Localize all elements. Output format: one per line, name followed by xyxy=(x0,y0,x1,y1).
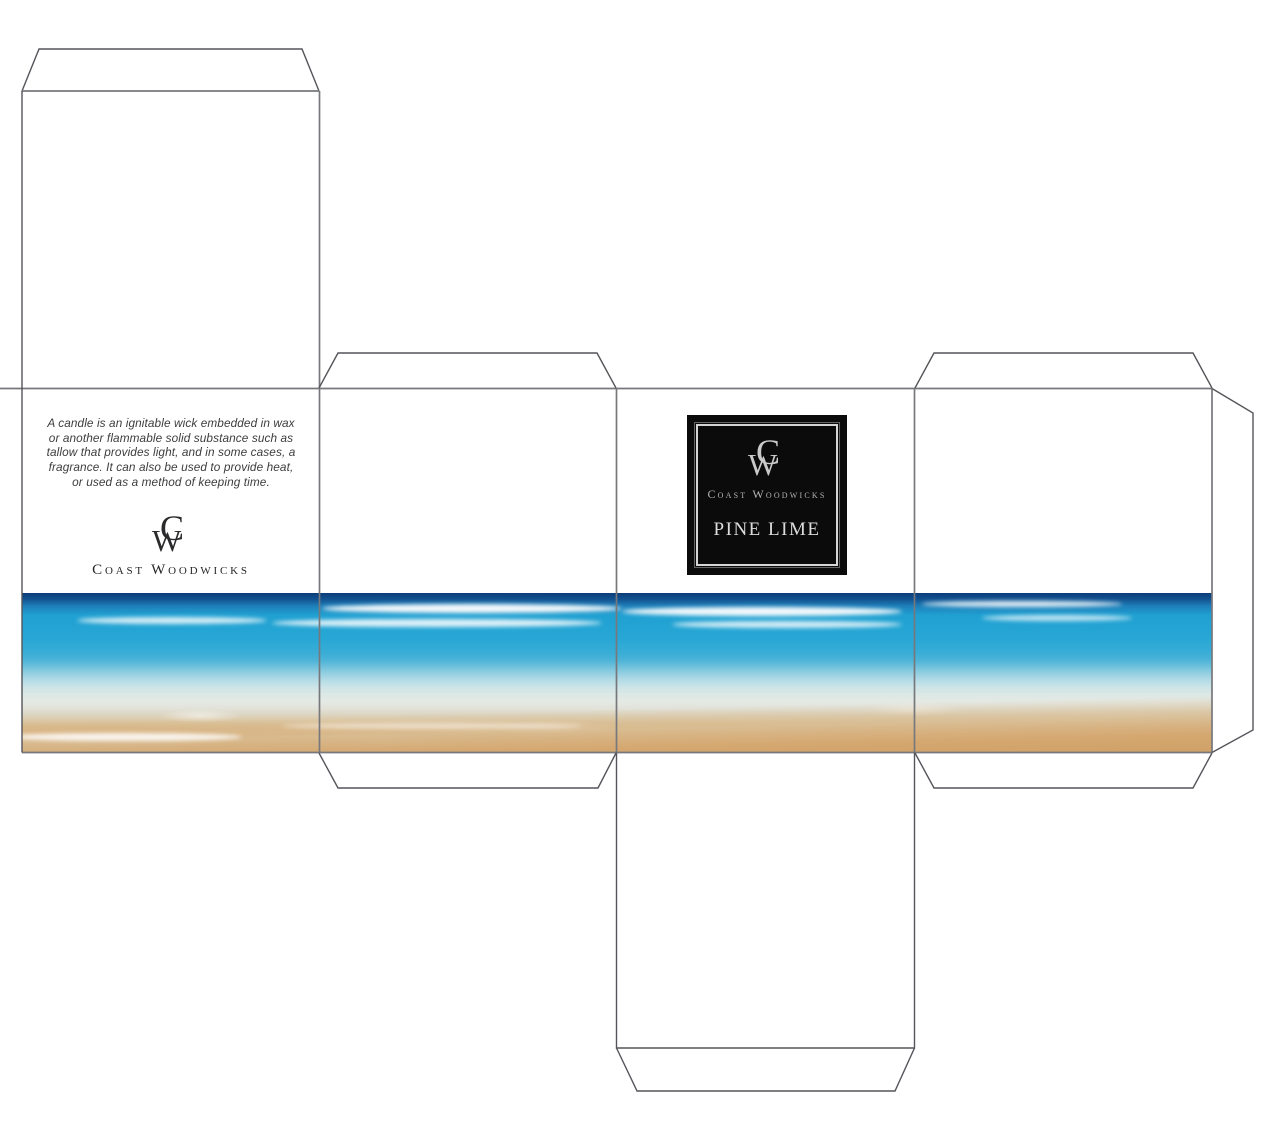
brand-wordmark: Coast Woodwicks xyxy=(92,562,250,579)
packaging-dieline: A candle is an ignitable wick embedded i… xyxy=(0,0,1276,1134)
monogram-letter-w: W xyxy=(748,449,777,480)
cw-monogram: C W xyxy=(152,512,190,559)
lid-column xyxy=(22,49,319,91)
description-line: A candle is an ignitable wick embedded i… xyxy=(47,416,296,431)
front-label: C W Coast Woodwicks PINE LIME xyxy=(687,415,847,575)
back-panel: A candle is an ignitable wick embedded i… xyxy=(22,388,320,579)
brand-wordmark: Coast Woodwicks xyxy=(707,487,826,502)
wave-crest xyxy=(272,619,602,627)
glue-flap xyxy=(1212,389,1253,753)
scent-name: PINE LIME xyxy=(714,519,821,541)
wave-crest xyxy=(922,601,1122,607)
base-column xyxy=(617,753,915,1092)
candle-description-text: A candle is an ignitable wick embedded i… xyxy=(47,416,296,490)
wave-crest xyxy=(622,607,902,616)
wave-crest xyxy=(672,621,902,628)
wave-crest xyxy=(77,617,267,624)
monogram-letter-w: W xyxy=(152,525,181,556)
foam-edge-line xyxy=(282,723,582,729)
top-tuck-flaps xyxy=(319,353,1212,388)
wave-crest xyxy=(322,604,622,613)
description-line: or used as a method of keeping time. xyxy=(47,475,296,490)
cw-monogram-silver: C W xyxy=(748,436,786,483)
description-line: or another flammable solid substance suc… xyxy=(47,431,296,446)
wave-crest xyxy=(982,615,1132,621)
description-line: tallow that provides light, and in some … xyxy=(47,445,296,460)
beach-photo-strip xyxy=(22,593,1212,753)
description-line: fragrance. It can also be used to provid… xyxy=(47,460,296,475)
bottom-tuck-flaps xyxy=(319,753,1212,788)
